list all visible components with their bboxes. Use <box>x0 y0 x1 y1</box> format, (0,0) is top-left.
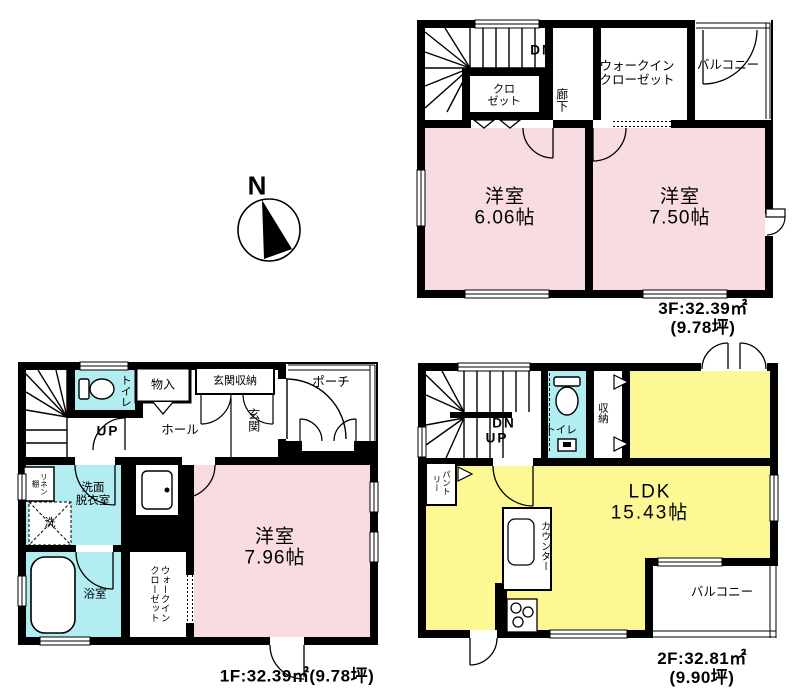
window-1f-left-b <box>18 576 26 606</box>
washroom-label-1f: 洗面 脱衣室 <box>76 482 111 508</box>
washbasin-icon-1f <box>142 471 172 509</box>
walk-in-closet-label-3f: ウォークイン クローゼット <box>599 59 674 87</box>
window-3f-left <box>417 170 425 226</box>
balcony-label-3f: バルコニー <box>697 58 759 72</box>
storage-label-1f: 物入 <box>151 378 175 391</box>
storage-label-2f: 収納 <box>596 403 608 424</box>
window-1f-bath-bottom <box>40 637 90 645</box>
closet-label-3f: クロ ゼット <box>488 84 521 109</box>
window-2f-bottom <box>550 630 627 638</box>
area-label-1f: 1F:32.39㎡(9.78坪) <box>220 666 374 685</box>
stove-icon <box>507 599 537 632</box>
counter-label-2f: カウンター <box>538 521 549 571</box>
room-label-1f: 洋室 7.96帖 <box>245 527 306 570</box>
corridor-label-3f: 廊下 <box>554 88 567 112</box>
floor-plan-canvas: N <box>0 0 812 693</box>
linen-shelf-label-1f: リネン棚 <box>31 471 48 497</box>
window-3f-top <box>475 20 539 28</box>
pantry-label-2f: パントリー <box>431 468 450 498</box>
bathroom-label-1f: 浴室 <box>84 589 107 602</box>
room-label-3f-a: 洋室 6.06帖 <box>475 187 536 230</box>
floor-1f-drawing <box>18 362 378 645</box>
ldk-label-2f: LDK 15.43帖 <box>611 482 690 525</box>
window-2f-left <box>418 427 426 457</box>
wic-opening-1f <box>186 575 194 623</box>
window-2f-top <box>458 363 530 371</box>
toilet-icon-1f <box>79 379 114 399</box>
stairs-up-label-1f: UP <box>97 423 120 438</box>
entrance-storage-label-1f: 玄関収納 <box>213 375 257 387</box>
entrance-label-1f: 玄関 <box>246 408 259 432</box>
window-1f-right-a <box>370 482 378 512</box>
porch-label-1f: ポーチ <box>312 375 350 389</box>
window-2f-right <box>770 475 778 521</box>
floor-plan-1f <box>18 362 378 645</box>
area-label-3f: 3F:32.39㎡(9.78坪) <box>649 299 758 337</box>
compass-icon <box>230 192 310 272</box>
door-3f-right <box>765 209 785 236</box>
window-2f-balcony <box>658 558 722 566</box>
top-double-doors-2f <box>701 343 767 371</box>
stairs-dn-label-2f: DN <box>492 415 516 430</box>
toilet-label-2f: トイレ <box>545 425 577 437</box>
area-label-2f: 2F:32.81㎡(9.90坪) <box>647 649 757 687</box>
wic-opening-3f <box>613 120 671 128</box>
door-2f-bottom <box>470 630 497 665</box>
stairs-dn-label-3f: DN <box>530 42 554 57</box>
window-1f-left-a <box>18 474 26 500</box>
window-3f-bottom-a <box>465 290 549 298</box>
walk-in-closet-label-1f: ウォークインクローゼット <box>147 563 168 626</box>
hall-label-1f: ホール <box>161 423 199 437</box>
kitchen-sink-icon <box>508 519 534 565</box>
window-1f-right-b <box>370 532 378 562</box>
toilet-label-1f: トイレ <box>119 375 131 408</box>
window-3f-bottom-b <box>643 290 727 298</box>
room-label-3f-b: 洋室 7.50帖 <box>650 187 711 230</box>
balcony-label-2f: バルコニー <box>691 585 753 599</box>
bathtub-icon-1f <box>31 557 75 633</box>
window-1f-top <box>80 362 128 370</box>
stairs-up-label-2f: UP <box>486 430 509 445</box>
washer-label-1f: 洗 <box>45 517 56 529</box>
